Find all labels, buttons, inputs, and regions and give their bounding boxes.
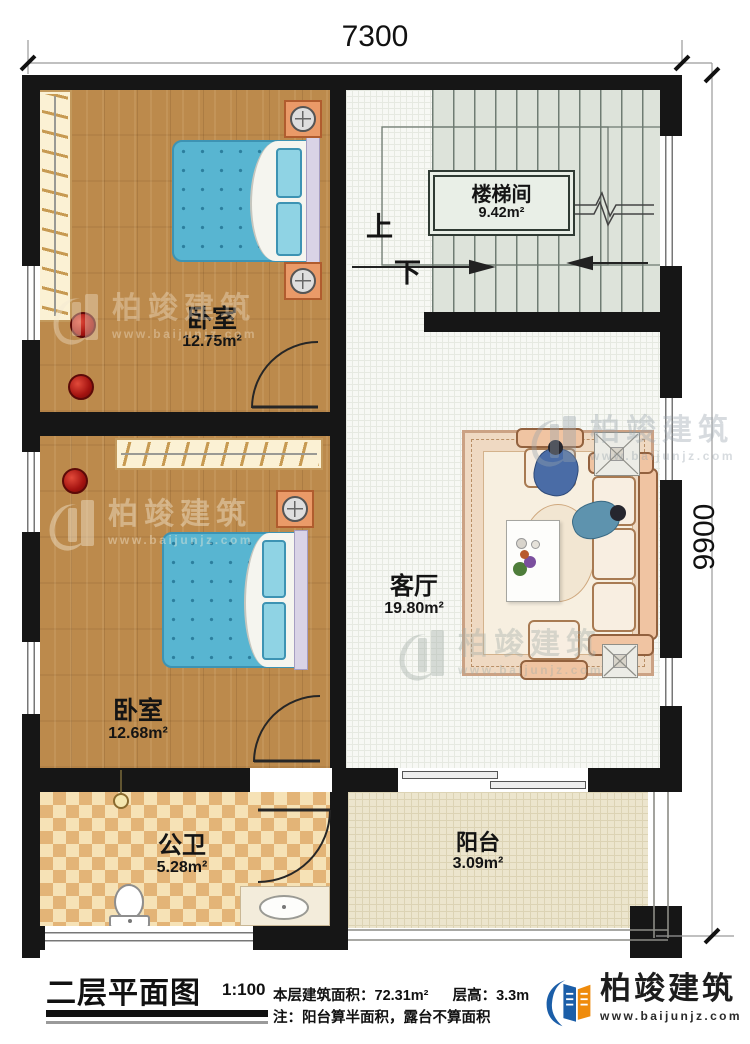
room-name: 卧室: [182, 306, 242, 333]
brand-url: www.baijunjz.com: [600, 1009, 742, 1023]
bedroom2-label: 卧室 12.68m²: [108, 698, 168, 742]
dimension-top: 7300: [300, 20, 450, 54]
bedroom1-stool: [68, 374, 94, 400]
area-info-line: 本层建筑面积：72.31m² 层高：3.3m: [273, 984, 529, 1005]
bedroom1-pillow: [276, 148, 302, 198]
closet-hangers: [42, 94, 68, 318]
bedroom2-pillow: [262, 540, 286, 598]
bedroom1-headboard: [306, 136, 320, 264]
wall-segment: [253, 926, 348, 950]
stairs-down-label: 下: [394, 260, 421, 287]
window: [45, 926, 253, 950]
balcony-column: [630, 906, 682, 958]
stairs-up-label: 上: [366, 214, 393, 241]
window: [660, 398, 682, 480]
wall-segment: [22, 75, 682, 90]
room-name: 客厅: [384, 574, 444, 600]
lamp-icon: [282, 496, 308, 522]
sofa-cushion: [592, 582, 636, 632]
window: [22, 452, 40, 532]
side-table: [602, 644, 638, 678]
floorplan-canvas: 卧室 12.75m² 卧室 12.68m² 客厅 19.80m² 公卫 5.28…: [0, 0, 750, 1044]
person-head: [610, 505, 626, 521]
floor-height-text: 层高：3.3m: [453, 988, 530, 1004]
stairwell-label: 楼梯间 9.42m²: [433, 175, 570, 231]
brand-name: 柏竣建筑: [600, 972, 742, 1006]
coffee-table-cup: [531, 540, 540, 549]
bedroom2-stool: [62, 468, 88, 494]
room-area: 3.09m²: [453, 855, 504, 872]
flower-vase: [520, 550, 529, 559]
bedroom1-nightstand: [284, 262, 322, 300]
bedroom1-closet: [38, 90, 72, 322]
sofa-back: [638, 468, 658, 640]
bedroom2-headboard: [294, 530, 308, 670]
bedroom2-closet: [115, 438, 323, 470]
brand-logo-icon: [540, 972, 594, 1030]
wall-segment: [424, 312, 660, 332]
room-area: 12.75m²: [182, 333, 242, 350]
room-name: 楼梯间: [472, 185, 532, 206]
title-underline-gray: [46, 1021, 268, 1024]
room-name: 卧室: [108, 698, 168, 725]
wall-segment: [22, 412, 346, 436]
bedroom1-nightstand: [284, 100, 322, 138]
person-head: [548, 440, 563, 455]
wall-segment: [332, 768, 398, 792]
wall-segment: [22, 532, 40, 642]
room-area: 9.42m²: [479, 206, 525, 221]
brand-logo: 柏竣建筑 www.baijunjz.com: [540, 972, 742, 1030]
room-area: 19.80m²: [384, 600, 444, 617]
closet-hangers: [119, 442, 319, 466]
bedroom2-nightstand: [276, 490, 314, 528]
drawing-title: 二层平面图: [46, 968, 201, 1012]
toilet-button: [128, 919, 132, 923]
wall-segment: [660, 266, 682, 398]
bathroom-label: 公卫 5.28m²: [157, 833, 208, 876]
sliding-door-panel: [402, 771, 498, 779]
sliding-door-panel: [490, 781, 586, 789]
bathroom-vanity: [240, 886, 330, 926]
bedroom2-pillow: [262, 602, 286, 660]
room-name: 阳台: [453, 831, 504, 855]
window: [660, 136, 682, 266]
balcony-label: 阳台 3.09m²: [453, 831, 504, 872]
wall-segment: [588, 768, 682, 792]
dimension-right: 9900: [688, 482, 722, 592]
window: [22, 642, 40, 714]
stairwell-label-box: 楼梯间 9.42m²: [428, 170, 575, 236]
lamp-icon: [290, 106, 316, 132]
title-underline: [46, 1010, 268, 1017]
living-room-label: 客厅 19.80m²: [384, 574, 444, 617]
wall-segment: [660, 90, 682, 136]
drawing-scale: 1:100: [222, 980, 265, 1000]
wall-segment: [22, 768, 250, 792]
floor-area-text: 本层建筑面积：72.31m²: [273, 988, 429, 1004]
side-table-top: [613, 654, 627, 668]
sink-drain: [282, 905, 286, 909]
wall-segment: [22, 90, 40, 266]
armchair-seat: [528, 620, 580, 660]
window: [22, 266, 40, 340]
wall-segment: [22, 926, 45, 950]
bedroom1-pillow: [276, 202, 302, 256]
room-name: 公卫: [157, 833, 208, 859]
note-line: 注：阳台算半面积，露台不算面积: [273, 1006, 491, 1027]
bedroom1-stool: [70, 312, 96, 338]
side-table: [594, 432, 640, 476]
coffee-table-cup: [516, 538, 527, 549]
wall-segment: [660, 480, 682, 658]
armchair-back: [520, 660, 588, 680]
lamp-icon: [290, 268, 316, 294]
bedroom1-label: 卧室 12.75m²: [182, 306, 242, 350]
room-area: 5.28m²: [157, 859, 208, 876]
wall-segment: [22, 714, 40, 958]
side-table-top: [610, 447, 624, 461]
window: [660, 658, 682, 706]
room-area: 12.68m²: [108, 725, 168, 742]
